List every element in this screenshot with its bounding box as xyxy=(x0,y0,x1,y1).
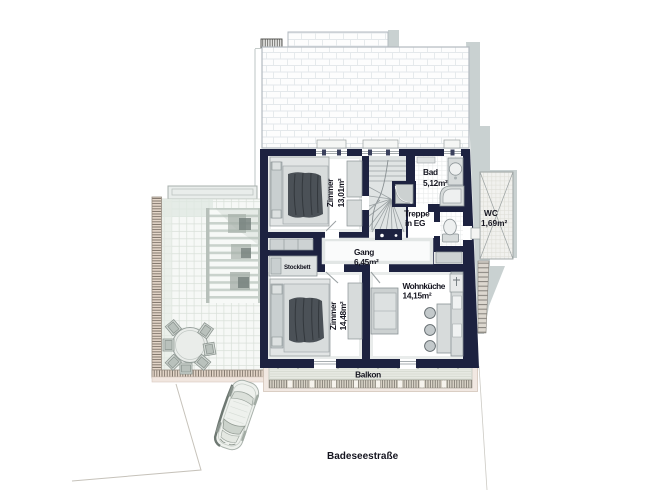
svg-text:14,48m²: 14,48m² xyxy=(338,301,348,330)
svg-text:14,15m²: 14,15m² xyxy=(403,291,432,301)
svg-text:Wohnküche: Wohnküche xyxy=(403,281,446,291)
svg-text:Treppe: Treppe xyxy=(404,209,430,219)
svg-text:Stockbett: Stockbett xyxy=(284,264,311,271)
svg-text:Bad: Bad xyxy=(423,167,438,177)
svg-text:Badeseestraße: Badeseestraße xyxy=(327,451,399,462)
svg-text:1,69m²: 1,69m² xyxy=(481,218,508,228)
svg-text:5,12m²: 5,12m² xyxy=(423,178,448,188)
svg-text:WC: WC xyxy=(484,208,498,218)
svg-text:Balkon: Balkon xyxy=(355,370,381,380)
svg-text:Zimmer: Zimmer xyxy=(328,301,338,330)
svg-text:in EG: in EG xyxy=(405,218,425,228)
svg-text:13,01m²: 13,01m² xyxy=(336,178,346,207)
svg-text:Gang: Gang xyxy=(354,247,374,257)
svg-text:Zimmer: Zimmer xyxy=(325,178,335,207)
